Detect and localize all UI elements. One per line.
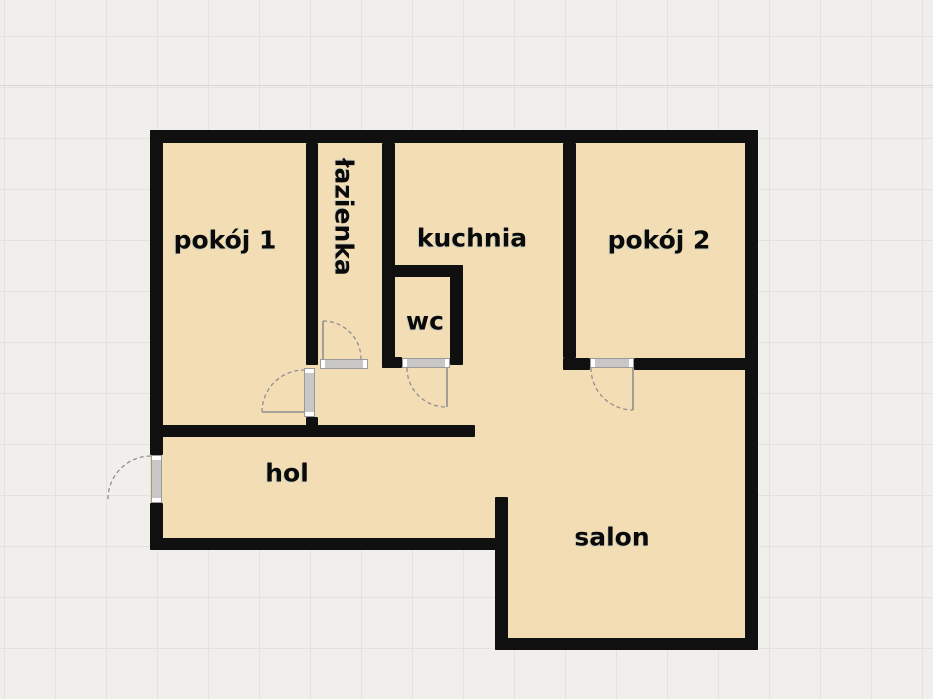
wall-exterior-left-upper bbox=[150, 130, 163, 455]
floor-plan: pokój 1 łazienka kuchnia wc pokój 2 hol … bbox=[0, 0, 933, 699]
wall-wc-right bbox=[450, 265, 463, 365]
door-entrance bbox=[151, 455, 162, 503]
floor-area-salon bbox=[495, 370, 758, 650]
room-label-wc: wc bbox=[406, 309, 444, 334]
room-label-kuchnia: kuchnia bbox=[417, 226, 527, 251]
wall-kuchnia-pokoj2 bbox=[563, 143, 576, 358]
wall-exterior-top bbox=[150, 130, 758, 143]
wall-exterior-salon-west bbox=[495, 497, 508, 650]
door-arc-entrance bbox=[108, 456, 151, 499]
room-label-lazienka: łazienka bbox=[332, 158, 357, 276]
wall-pokoj1-lazienka bbox=[306, 143, 318, 365]
door-wc bbox=[402, 358, 450, 368]
room-label-hol: hol bbox=[265, 461, 309, 486]
wall-exterior-right bbox=[745, 130, 758, 650]
room-label-pokoj1: pokój 1 bbox=[174, 228, 277, 253]
door-pokoj2 bbox=[590, 358, 634, 368]
wall-exterior-salon-bottom bbox=[495, 638, 758, 650]
wall-hol-top bbox=[150, 425, 475, 437]
wall-exterior-hol-bottom bbox=[150, 538, 508, 550]
wall-wc-door-stub bbox=[382, 357, 402, 368]
wall-pokoj2-bottom-right bbox=[634, 358, 758, 370]
room-label-pokoj2: pokój 2 bbox=[608, 228, 711, 253]
door-pokoj1 bbox=[304, 368, 315, 417]
wall-pokoj2-bottom-left bbox=[563, 358, 590, 370]
door-lazienka bbox=[320, 359, 368, 369]
wall-lazienka-kuchnia bbox=[382, 143, 395, 368]
grid-line-strong bbox=[0, 85, 933, 86]
room-label-salon: salon bbox=[574, 525, 649, 550]
